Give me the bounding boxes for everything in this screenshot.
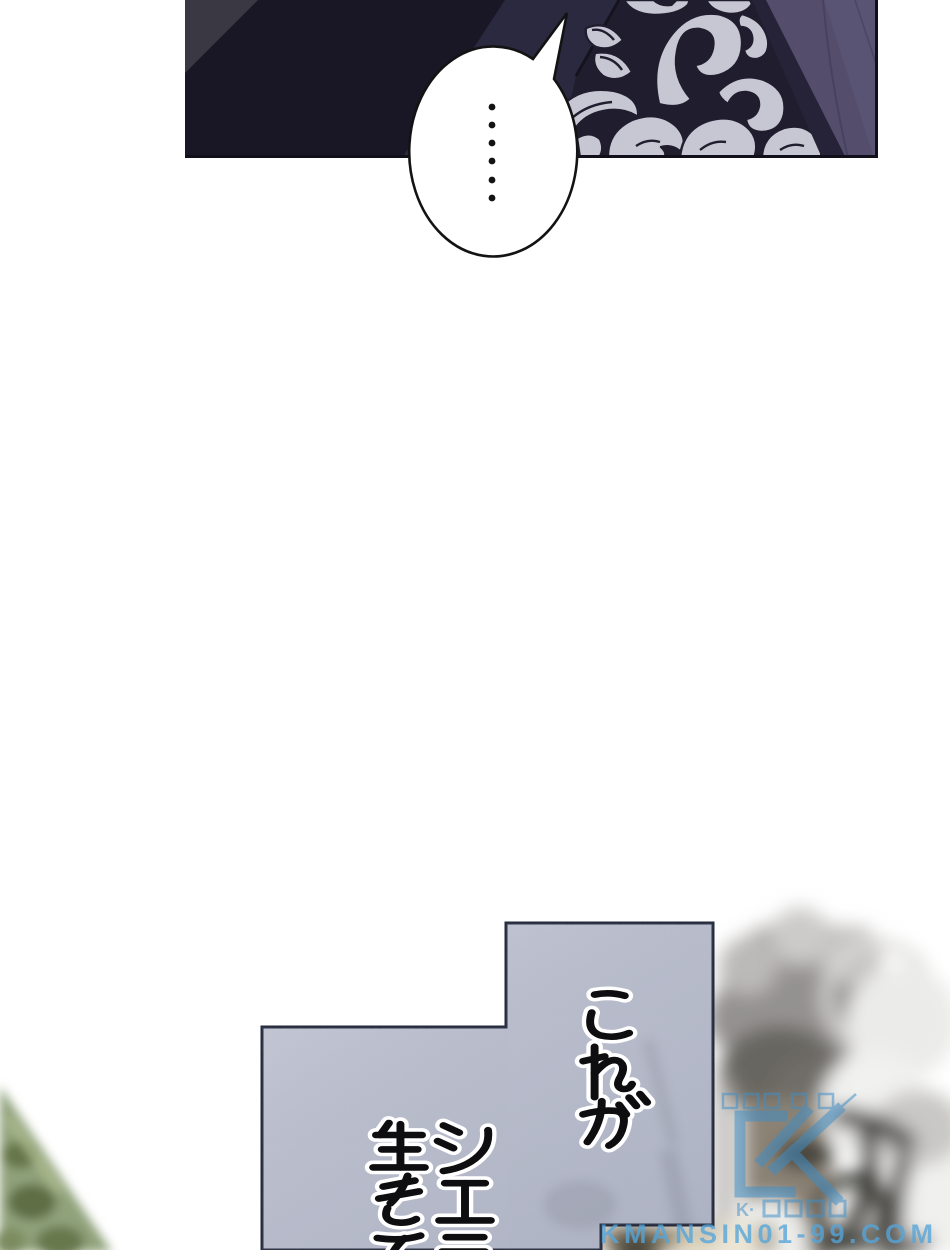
svg-text:KMANSIN01-99.COM: KMANSIN01-99.COM bbox=[600, 1219, 938, 1249]
svg-text:K·: K· bbox=[736, 1200, 755, 1220]
